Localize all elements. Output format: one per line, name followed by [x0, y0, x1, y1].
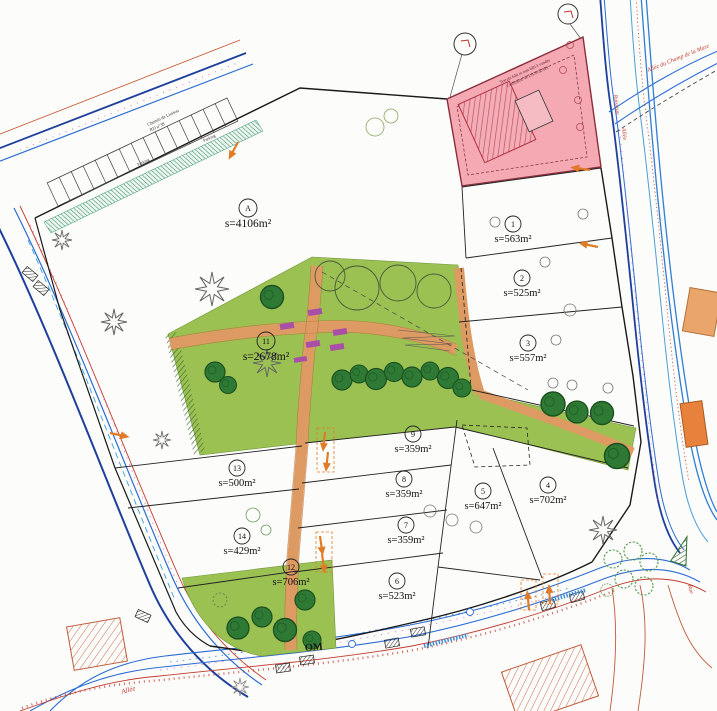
svg-text:s=702m²: s=702m² [529, 495, 566, 506]
parcel-label-5: 5 s=647m² [464, 483, 501, 512]
building-hatched-bottom-right [501, 645, 598, 711]
tree-icon [261, 286, 284, 309]
svg-text:5: 5 [481, 487, 485, 496]
svg-text:4: 4 [546, 481, 550, 490]
tree-icon [402, 367, 422, 387]
utility-box-icon [33, 280, 49, 295]
tree-icon [605, 444, 630, 469]
svg-text:s=359m²: s=359m² [387, 535, 424, 546]
parcel-label-4: 4 s=702m² [529, 477, 566, 506]
tree-icon [332, 370, 352, 390]
svg-text:s=647m²: s=647m² [464, 501, 501, 512]
survey-marker-circle [558, 4, 578, 24]
parcel-label-14: 14 s=429m² [223, 528, 260, 557]
road-label-allee-bottom: Allée [119, 684, 136, 696]
manhole-icon [349, 641, 356, 648]
svg-text:s=359m²: s=359m² [385, 489, 422, 500]
svg-text:s=525m²: s=525m² [503, 288, 540, 299]
tree-outline-icon [601, 584, 614, 597]
tree-icon [385, 363, 404, 382]
survey-leader [450, 54, 462, 97]
tree-icon [366, 369, 387, 390]
survey-leader [570, 24, 581, 39]
tree-icon [566, 401, 588, 423]
utility-box-icon [384, 638, 399, 648]
svg-text:9: 9 [411, 430, 415, 439]
svg-text:8: 8 [402, 475, 406, 484]
svg-text:s=706m²: s=706m² [272, 577, 309, 588]
access-arrow-icon [109, 429, 130, 441]
right-road [600, 0, 708, 553]
parcel-label-2: 2 s=525m² [503, 270, 540, 299]
tree-icon [274, 619, 297, 642]
svg-text:s=359m²: s=359m² [394, 444, 431, 455]
svg-text:s=523m²: s=523m² [378, 591, 415, 602]
parcel-label-6: 6 s=523m² [378, 573, 415, 602]
road-label-om: OM [304, 642, 323, 654]
road-label-allee-right: Allée [620, 127, 627, 141]
road-label-rue-bottom: Rue [686, 583, 694, 595]
utility-box-icon [135, 609, 151, 622]
park-area [165, 257, 636, 470]
utility-box-icon [410, 627, 425, 637]
access-arrow-icon [322, 452, 332, 473]
tree-icon [252, 607, 272, 627]
star-icon [195, 272, 229, 306]
svg-text:14: 14 [238, 532, 246, 541]
svg-text:6: 6 [395, 577, 399, 586]
tree-outline-icon [624, 542, 642, 560]
parcel-label-7: 7 s=359m² [387, 517, 424, 546]
svg-text:s=4106m²: s=4106m² [225, 218, 272, 230]
building-orange-right [680, 401, 708, 448]
svg-text:11: 11 [262, 337, 270, 346]
star-icon [153, 431, 171, 449]
parcel-label-A: A s=4106m² [225, 199, 272, 230]
star-icon [52, 230, 72, 250]
svg-text:s=2678m²: s=2678m² [243, 351, 290, 363]
utility-box-icon [276, 663, 291, 673]
tree-icon [227, 617, 249, 639]
svg-text:1: 1 [511, 220, 515, 229]
tree-icon [541, 392, 565, 416]
pink-parcel: Terrain bâti et non bâti à vendre Commun… [447, 37, 601, 186]
survey-marker-symbol [564, 11, 573, 18]
tree-outline-icon [604, 550, 622, 568]
svg-text:s=500m²: s=500m² [218, 478, 255, 489]
parcel-label-8: 8 s=359m² [385, 471, 422, 500]
building-hatched-bottom-left [67, 618, 128, 671]
conifer-icon [671, 534, 695, 566]
site-plan-svg: Chemin de Liaison RD n°38 Parking Parkin… [0, 0, 717, 711]
parcel-label-3: 3 s=557m² [509, 335, 546, 364]
tree-icon [591, 402, 614, 425]
svg-text:s=557m²: s=557m² [509, 353, 546, 364]
svg-text:12: 12 [287, 563, 295, 572]
tree-icon [453, 379, 471, 397]
chemin-label: Chemin de Liaison RD n°38 [146, 108, 182, 133]
tree-outline-icon [640, 553, 658, 571]
bottom-right-roads [610, 585, 712, 711]
utility-box-icon [300, 655, 315, 665]
parcel-label-13: 13 s=500m² [218, 460, 255, 489]
tree-icon [295, 590, 315, 610]
svg-text:3: 3 [526, 339, 530, 348]
plan-canvas: Chemin de Liaison RD n°38 Parking Parkin… [0, 0, 717, 711]
svg-text:A: A [245, 204, 251, 213]
star-icon [101, 309, 127, 335]
survey-marker-symbol [461, 40, 470, 47]
road-label-ruisseau: Ruisseau [612, 94, 621, 116]
svg-text:s=429m²: s=429m² [223, 546, 260, 557]
tree-icon [220, 377, 237, 394]
building-tan-top-right [682, 288, 717, 337]
survey-marker-circle [454, 33, 476, 55]
svg-text:7: 7 [404, 521, 408, 530]
svg-text:13: 13 [233, 464, 241, 473]
svg-text:2: 2 [520, 274, 524, 283]
manhole-icon [467, 609, 474, 616]
access-arrow-icon [316, 535, 327, 556]
svg-text:s=563m²: s=563m² [494, 234, 531, 245]
tree-icon [421, 362, 439, 380]
access-arrow-icon [578, 239, 599, 251]
utility-box-icon [22, 266, 38, 281]
